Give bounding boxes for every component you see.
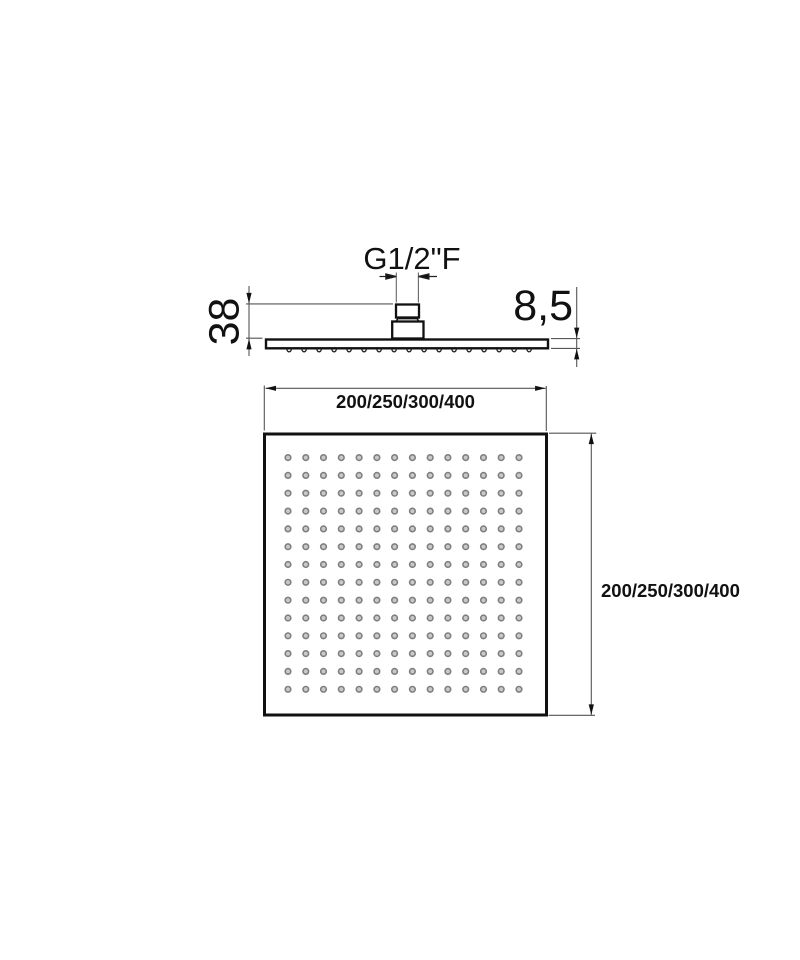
svg-text:G1/2"F: G1/2"F	[363, 241, 460, 276]
svg-text:38: 38	[201, 298, 249, 346]
svg-text:200/250/300/400: 200/250/300/400	[601, 580, 740, 601]
svg-text:8,5: 8,5	[513, 282, 573, 330]
svg-text:200/250/300/400: 200/250/300/400	[336, 391, 475, 412]
